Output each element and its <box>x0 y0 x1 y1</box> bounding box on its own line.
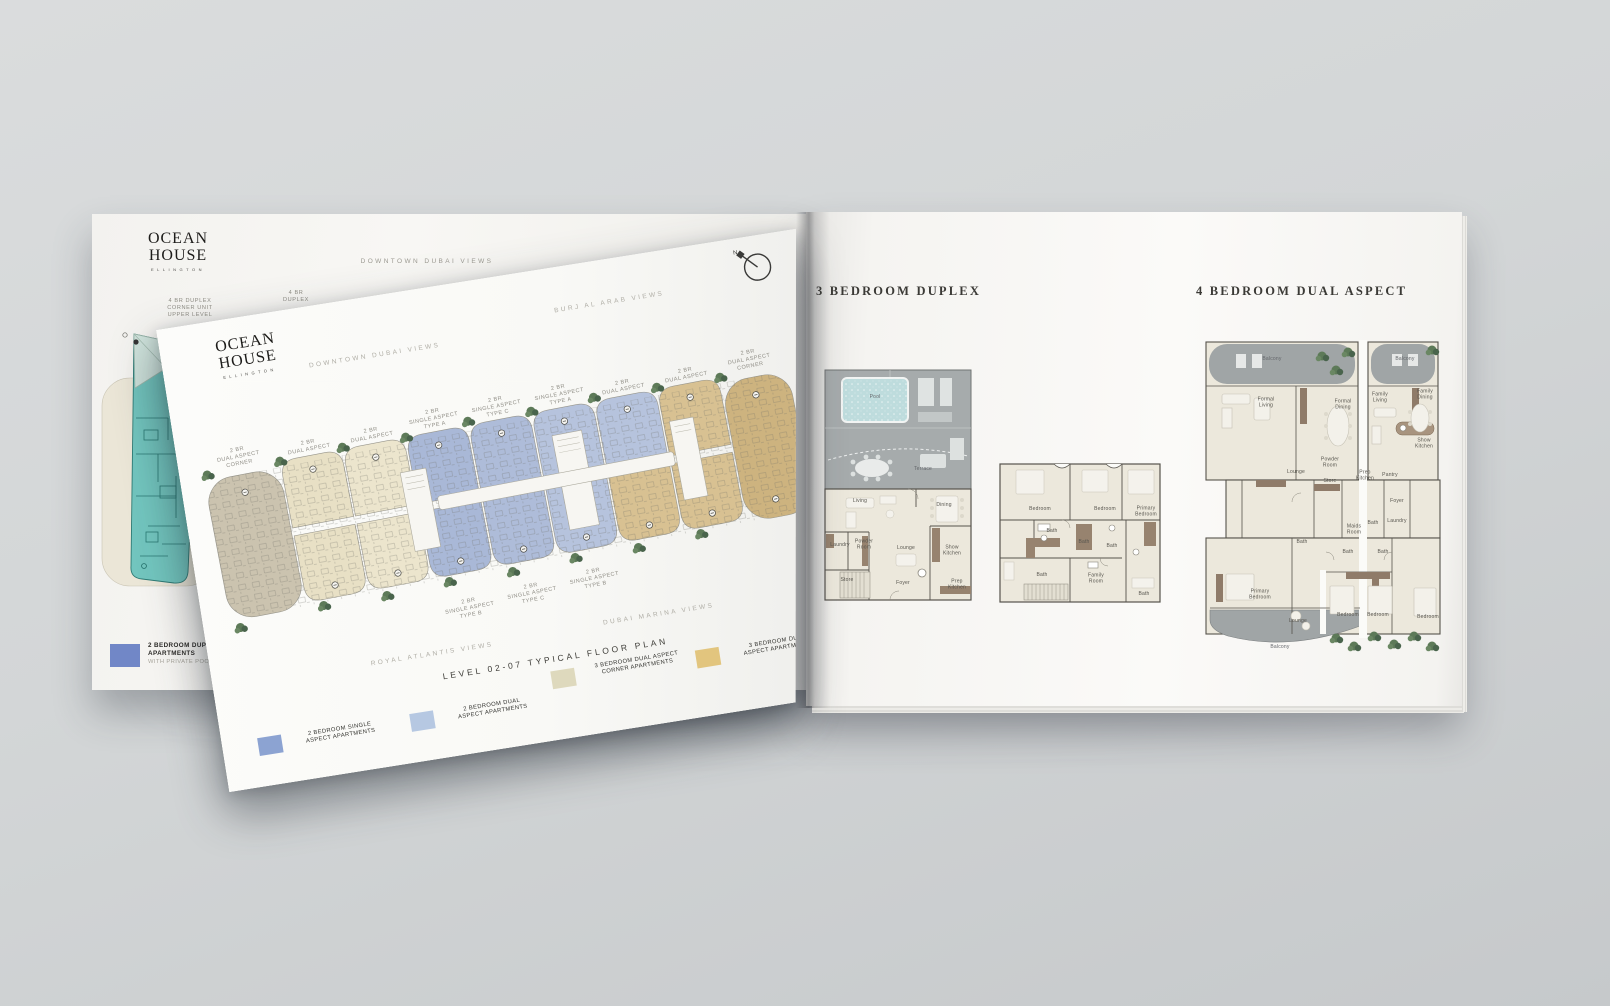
room-label: Balcony <box>1262 357 1281 363</box>
room-label: Bath <box>1046 529 1057 535</box>
duplex-upper-drawing <box>992 450 1166 610</box>
room-label: Lounge <box>1287 470 1305 476</box>
unit-label-duplex: 4 BR DUPLEX <box>270 290 322 304</box>
room-label: Foyer <box>896 581 910 587</box>
four-bed-drawing <box>1196 326 1444 662</box>
room-label: Primary Bedroom <box>1135 506 1157 517</box>
four-bed-plan: Balcony Balcony Formal Living Formal Din… <box>1196 326 1444 662</box>
room-label: Formal Dining <box>1335 399 1352 410</box>
legend-swatch-corner <box>550 668 577 690</box>
view-label-downtown: DOWNTOWN DUBAI VIEWS <box>332 258 522 265</box>
room-label: Lounge <box>1289 619 1307 625</box>
unit-label-duplex-corner: 4 BR DUPLEX CORNER UNIT UPPER LEVEL <box>150 298 230 318</box>
legend-swatch-single-aspect <box>257 734 284 756</box>
room-label: Store <box>841 578 854 584</box>
brand-logo: OCEAN HOUSE ELLINGTON <box>118 230 238 272</box>
room-label: Living <box>853 499 867 505</box>
room-label: Bedroom <box>1029 507 1051 513</box>
room-label: Store <box>1324 479 1337 485</box>
brand-logo: OCEAN HOUSE ELLINGTON <box>184 325 309 385</box>
section-title-four-bed: 4 BEDROOM DUAL ASPECT <box>1196 284 1407 299</box>
duplex-lower-drawing <box>820 358 976 608</box>
legend-label-dual-aspect: 2 BEDROOM DUAL ASPECT APARTMENTS <box>437 694 548 725</box>
room-label: Bath <box>1377 550 1388 556</box>
room-label: Powder Room <box>855 539 873 550</box>
room-label: Bedroom <box>1337 613 1359 619</box>
section-title-duplex: 3 BEDROOM DUPLEX <box>816 284 981 299</box>
room-label: Laundry <box>830 543 849 549</box>
room-label: Balcony <box>1395 357 1414 363</box>
room-label: Bath <box>1296 540 1307 546</box>
room-label: Laundry <box>1387 519 1406 525</box>
compass-label: N <box>733 250 738 257</box>
room-label: Dining <box>936 503 951 509</box>
room-label: Bath <box>1342 550 1353 556</box>
brand-subtitle: ELLINGTON <box>118 267 238 272</box>
room-label: Balcony <box>1270 645 1289 651</box>
room-label: Bath <box>1078 540 1089 546</box>
room-label: Bedroom <box>1367 613 1389 619</box>
room-label: Show Kitchen <box>1415 438 1433 449</box>
room-label: Bath <box>1036 573 1047 579</box>
legend-swatch-duplex <box>110 644 140 667</box>
room-label: Lounge <box>897 546 915 552</box>
right-page: 3 BEDROOM DUPLEX 4 BEDROOM DUAL ASPECT <box>806 212 1462 706</box>
room-label: Bath <box>1367 521 1378 527</box>
room-label: Prep Kitchen <box>1356 470 1374 481</box>
room-label: Maids Room <box>1347 524 1361 535</box>
brand-name: OCEAN HOUSE <box>118 230 238 264</box>
room-label: Family Room <box>1088 573 1104 584</box>
room-label: Prep Kitchen <box>948 579 966 590</box>
room-label: Bath <box>1106 544 1117 550</box>
legend-swatch-dual-aspect <box>409 710 436 732</box>
room-label: Terrace <box>914 467 932 473</box>
room-label: Foyer <box>1390 499 1404 505</box>
legend-label-single-aspect: 2 BEDROOM SINGLE ASPECT APARTMENTS <box>285 718 396 749</box>
legend-swatch-three-bed-dual <box>695 647 722 669</box>
room-label: Bath <box>1138 592 1149 598</box>
room-label: Powder Room <box>1321 457 1339 468</box>
room-label: Bedroom <box>1094 507 1116 513</box>
room-label: Family Living <box>1372 392 1388 403</box>
room-label: Primary Bedroom <box>1249 589 1271 600</box>
compass-icon: N <box>730 241 778 289</box>
duplex-lower-plan: Pool Terrace Living Dining Laundry Powde… <box>820 358 976 608</box>
room-label: Pool <box>870 395 881 401</box>
room-label: Pantry <box>1382 473 1398 479</box>
room-label: Formal Living <box>1258 397 1275 408</box>
overlay-page: OCEAN HOUSE ELLINGTON N DOWNTOWN DUBAI V… <box>156 229 869 793</box>
room-label: Bedroom <box>1417 615 1439 621</box>
duplex-upper-plan: Bedroom Bath Bedroom Bath Primary Bedroo… <box>992 450 1166 610</box>
room-label: Show Kitchen <box>943 545 961 556</box>
room-label: Family Dining <box>1417 389 1433 400</box>
